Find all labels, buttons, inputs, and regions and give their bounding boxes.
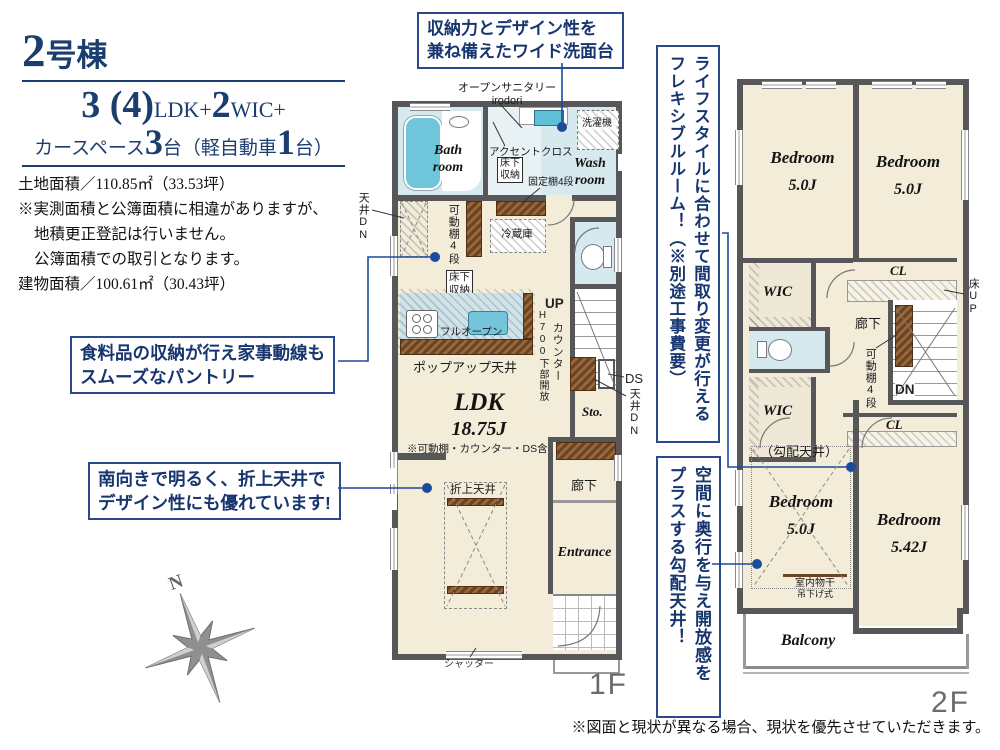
toilet-icon-1f bbox=[581, 244, 605, 270]
wall bbox=[749, 369, 829, 373]
movable-shelf-icon-1f bbox=[466, 201, 482, 257]
open-sanitary-label: オープンサニタリー irodori bbox=[452, 82, 562, 108]
hanger-strip bbox=[749, 377, 759, 457]
toilet-icon-2f bbox=[768, 339, 792, 361]
spec-ldk-label: LDK+ bbox=[154, 97, 212, 122]
counter-label: カウンター bbox=[550, 322, 563, 382]
door-opening bbox=[546, 195, 572, 201]
ldk-size-label: 18.75J bbox=[445, 417, 513, 441]
window bbox=[762, 81, 802, 89]
car-prefix: カースペース bbox=[34, 138, 145, 159]
hanger-strip bbox=[749, 317, 811, 327]
duct-shaft bbox=[570, 357, 596, 391]
drain-icon bbox=[449, 116, 469, 128]
note-line-1: ※実測面積と公簿面積に相違がありますが、 bbox=[18, 197, 328, 222]
ceiling-dn-left-label: 天井DN bbox=[356, 192, 369, 242]
half-wall bbox=[398, 453, 446, 460]
wall bbox=[570, 391, 575, 437]
compass-highlight bbox=[198, 654, 220, 704]
compass-star bbox=[126, 574, 275, 723]
sloped-ceiling-area bbox=[751, 446, 851, 589]
balcony-floor bbox=[863, 634, 957, 666]
callout-pantry: 食料品の収納が行え家事動線も スムーズなパントリー bbox=[70, 336, 335, 394]
compass-highlight bbox=[180, 592, 202, 642]
balcony-label: Balcony bbox=[781, 631, 835, 650]
balcony-rail bbox=[743, 666, 969, 669]
callout-flexible-room: ライフスタイルに合わせて間取り変更が行える フレキシブルルーム！（※別途工事費要… bbox=[656, 45, 720, 443]
rule-bottom bbox=[22, 165, 345, 167]
kitchen-cabinet-side bbox=[523, 293, 533, 339]
stove-icon bbox=[406, 310, 438, 338]
wall bbox=[825, 327, 830, 373]
hallway-label-1f: 廊下 bbox=[571, 478, 597, 494]
disclaimer: ※図面と現状が異なる場合、現状を優先させていただきます。 bbox=[571, 716, 990, 737]
hall-closet bbox=[556, 442, 616, 460]
window bbox=[735, 130, 743, 185]
bedroom2-label: Bedroom bbox=[870, 152, 946, 172]
wic2-label: WIC bbox=[763, 402, 792, 420]
balcony-rail-side bbox=[966, 634, 969, 669]
ldk-label: LDK bbox=[451, 388, 507, 418]
drying-type-label: 吊下げ式 bbox=[783, 589, 847, 600]
popup-ceiling-label: ポップアップ天井 bbox=[413, 360, 517, 376]
hallway-label-2f: 廊下 bbox=[855, 316, 881, 332]
floor-plan-sheet: 2号棟 3 (4)LDK+2WIC+ カースペース3台（軽自動車1台） 土地面積… bbox=[0, 0, 1000, 750]
wide-vanity-icon bbox=[534, 110, 564, 126]
toilet-tank-icon-2f bbox=[757, 341, 767, 358]
car-mid: 台（軽自動車 bbox=[163, 138, 277, 159]
ds-box bbox=[598, 359, 615, 389]
window bbox=[735, 552, 743, 588]
compass-north-label: N bbox=[166, 570, 186, 595]
building-number: 2 bbox=[22, 25, 46, 77]
building-area: 建物面積／100.61㎡（30.43坪） bbox=[18, 272, 328, 297]
bathroom-label: Bath room bbox=[412, 143, 484, 177]
spec-wic-count: 2 bbox=[212, 84, 231, 126]
ceiling-beam bbox=[447, 586, 504, 594]
window bbox=[735, 470, 743, 506]
window bbox=[390, 528, 398, 570]
washing-machine-space bbox=[577, 110, 619, 150]
washroom-label: Wash room bbox=[566, 156, 614, 190]
drying-bar-icon bbox=[783, 574, 847, 577]
movable-shelf-label-1f: 可動棚4段 bbox=[446, 204, 459, 265]
bedroom1-label: Bedroom bbox=[765, 148, 840, 168]
ceiling-dn-right-label: 天井DN bbox=[627, 388, 640, 438]
wic1-label: WIC bbox=[763, 283, 792, 301]
vent-arrow-icon bbox=[382, 468, 397, 484]
bedroom4-label: Bedroom bbox=[869, 510, 949, 530]
bedroom1-size: 5.0J bbox=[765, 176, 840, 195]
movable-shelf-label-2f: 可動棚4段 bbox=[863, 348, 876, 409]
cl2-shelf bbox=[847, 431, 957, 447]
toilet-tank-icon-1f bbox=[603, 246, 612, 268]
compass-rose: N bbox=[118, 553, 274, 722]
page-title: 2号棟 bbox=[22, 24, 108, 78]
car-suffix: 台） bbox=[295, 138, 333, 159]
floor-label-1f: 1F bbox=[589, 668, 628, 702]
movable-shelf-icon-2f bbox=[895, 305, 913, 367]
genkan-tile bbox=[553, 594, 616, 650]
storage-label: Sto. bbox=[582, 404, 603, 420]
kitchen-cabinet bbox=[400, 339, 533, 355]
kei-car-count: 1 bbox=[277, 122, 295, 162]
entrance-label: Entrance bbox=[553, 545, 616, 562]
note-line-3: 公簿面積での取引となります。 bbox=[18, 247, 328, 272]
fridge-label: 冷蔵庫 bbox=[491, 228, 543, 241]
stairs-dn-label: DN bbox=[895, 382, 915, 398]
compass-highlight bbox=[206, 628, 256, 650]
counter-note-label: H700下部開放 bbox=[536, 310, 548, 402]
floor-up-label: 床UP bbox=[966, 278, 979, 316]
wall bbox=[853, 85, 859, 258]
wall bbox=[843, 258, 957, 262]
window bbox=[614, 238, 622, 272]
car-space-line: カースペース3台（軽自動車1台） bbox=[22, 121, 345, 163]
area-info: 土地面積／110.85㎡（33.53坪） ※実測面積と公簿面積に相違がありますが… bbox=[18, 172, 328, 298]
window bbox=[614, 455, 622, 481]
window bbox=[872, 81, 912, 89]
window bbox=[390, 236, 398, 276]
ceiling-down-area bbox=[400, 201, 428, 257]
vent-arrow-icon bbox=[618, 154, 633, 171]
bedroom4-extension bbox=[859, 606, 957, 626]
callout-sloped-ceiling: 空間に奥行を与え開放感を プラスする勾配天井！ bbox=[656, 456, 721, 718]
callout-vanity: 収納力とデザイン性を 兼ね備えたワイド洗面台 bbox=[417, 12, 624, 69]
washing-machine-label: 洗濯機 bbox=[578, 118, 616, 130]
underfloor-storage-label-1: 床下 収納 bbox=[497, 157, 523, 183]
coffered-ceiling-label: 折上天井 bbox=[450, 484, 496, 498]
wall bbox=[811, 263, 816, 327]
window bbox=[916, 81, 946, 89]
callout-south-light: 南向きで明るく、折上天井で デザイン性にも優れています! bbox=[88, 462, 341, 520]
window bbox=[806, 81, 836, 89]
window-shutter bbox=[446, 651, 522, 659]
spec-ldk-count: 3 (4) bbox=[81, 84, 154, 126]
wall bbox=[888, 400, 963, 405]
floor-label-2f: 2F bbox=[931, 686, 970, 720]
full-open-label: フルオープン bbox=[440, 326, 502, 339]
car-count: 3 bbox=[145, 122, 163, 162]
ceiling-beam bbox=[447, 498, 504, 506]
bedroom4-size: 5.42J bbox=[869, 538, 949, 557]
shutter-label: シャッター bbox=[444, 659, 494, 671]
compass-highlight bbox=[144, 646, 194, 668]
fixed-shelf-icon bbox=[496, 201, 546, 216]
wall bbox=[570, 222, 575, 284]
entrance-step-line bbox=[553, 500, 616, 503]
window bbox=[410, 103, 450, 111]
cl1-shelf bbox=[847, 280, 957, 302]
wall bbox=[888, 300, 893, 400]
vent-arrow-icon bbox=[382, 494, 397, 510]
rule-top bbox=[22, 80, 345, 82]
balcony-rail-side bbox=[743, 614, 746, 669]
wall bbox=[853, 400, 859, 608]
bedroom3-size: 5.0J bbox=[763, 520, 839, 539]
cl1-label: CL bbox=[890, 263, 907, 279]
ds-label: DS bbox=[625, 371, 643, 387]
bedroom2-size: 5.0J bbox=[870, 180, 946, 199]
hanger-strip bbox=[749, 377, 811, 387]
land-area: 土地面積／110.85㎡（33.53坪） bbox=[18, 172, 328, 197]
building-number-suffix: 号棟 bbox=[46, 38, 108, 73]
window bbox=[961, 130, 969, 200]
spec-wic-label: WIC+ bbox=[231, 97, 286, 122]
wall bbox=[548, 437, 553, 594]
note-line-2: 地積更正登記は行いません。 bbox=[18, 222, 328, 247]
bedroom3-label: Bedroom bbox=[763, 492, 839, 512]
balcony-rail bbox=[743, 672, 969, 674]
window bbox=[961, 505, 969, 560]
